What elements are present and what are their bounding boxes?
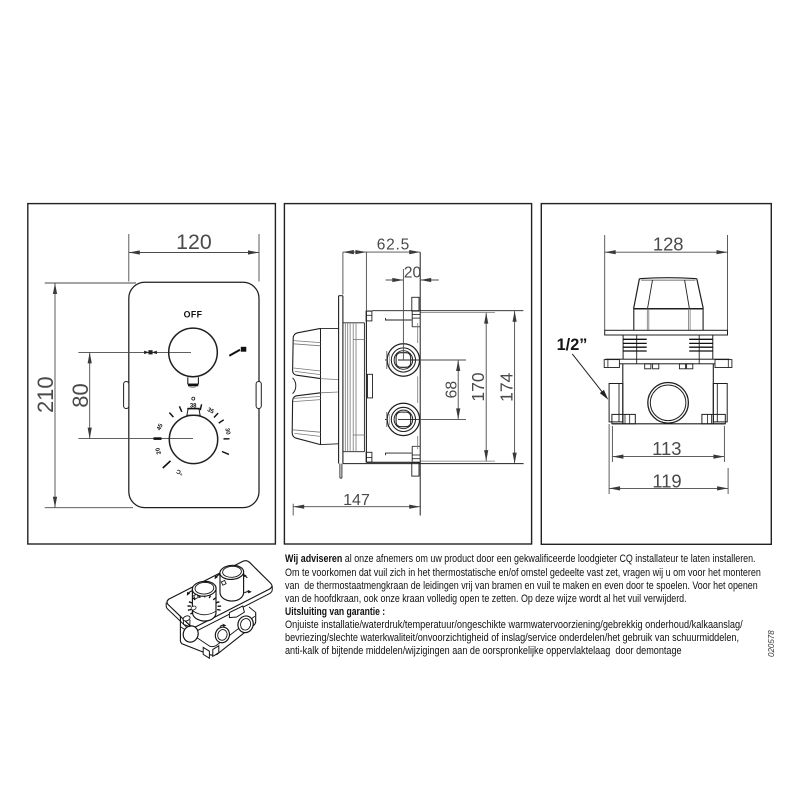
svg-text:119: 119 [652, 471, 681, 492]
svg-text:38: 38 [190, 403, 197, 409]
svg-text:128: 128 [653, 234, 684, 255]
svg-text:°C: °C [175, 467, 184, 475]
svg-text:OFF: OFF [184, 309, 203, 319]
svg-text:68: 68 [443, 381, 460, 399]
svg-text:35: 35 [206, 407, 215, 416]
svg-text:20: 20 [155, 446, 163, 455]
svg-text:80: 80 [68, 383, 93, 407]
svg-text:20: 20 [404, 265, 422, 282]
svg-text:113: 113 [652, 438, 681, 459]
svg-text:120: 120 [176, 230, 212, 254]
svg-text:170: 170 [468, 372, 488, 401]
svg-text:147: 147 [343, 492, 370, 509]
svg-text:1/2”: 1/2” [557, 336, 588, 354]
svg-text:45: 45 [157, 422, 165, 431]
svg-text:62.5: 62.5 [377, 237, 410, 254]
svg-text:174: 174 [496, 372, 516, 401]
svg-text:210: 210 [33, 376, 58, 413]
svg-text:30: 30 [223, 428, 231, 437]
